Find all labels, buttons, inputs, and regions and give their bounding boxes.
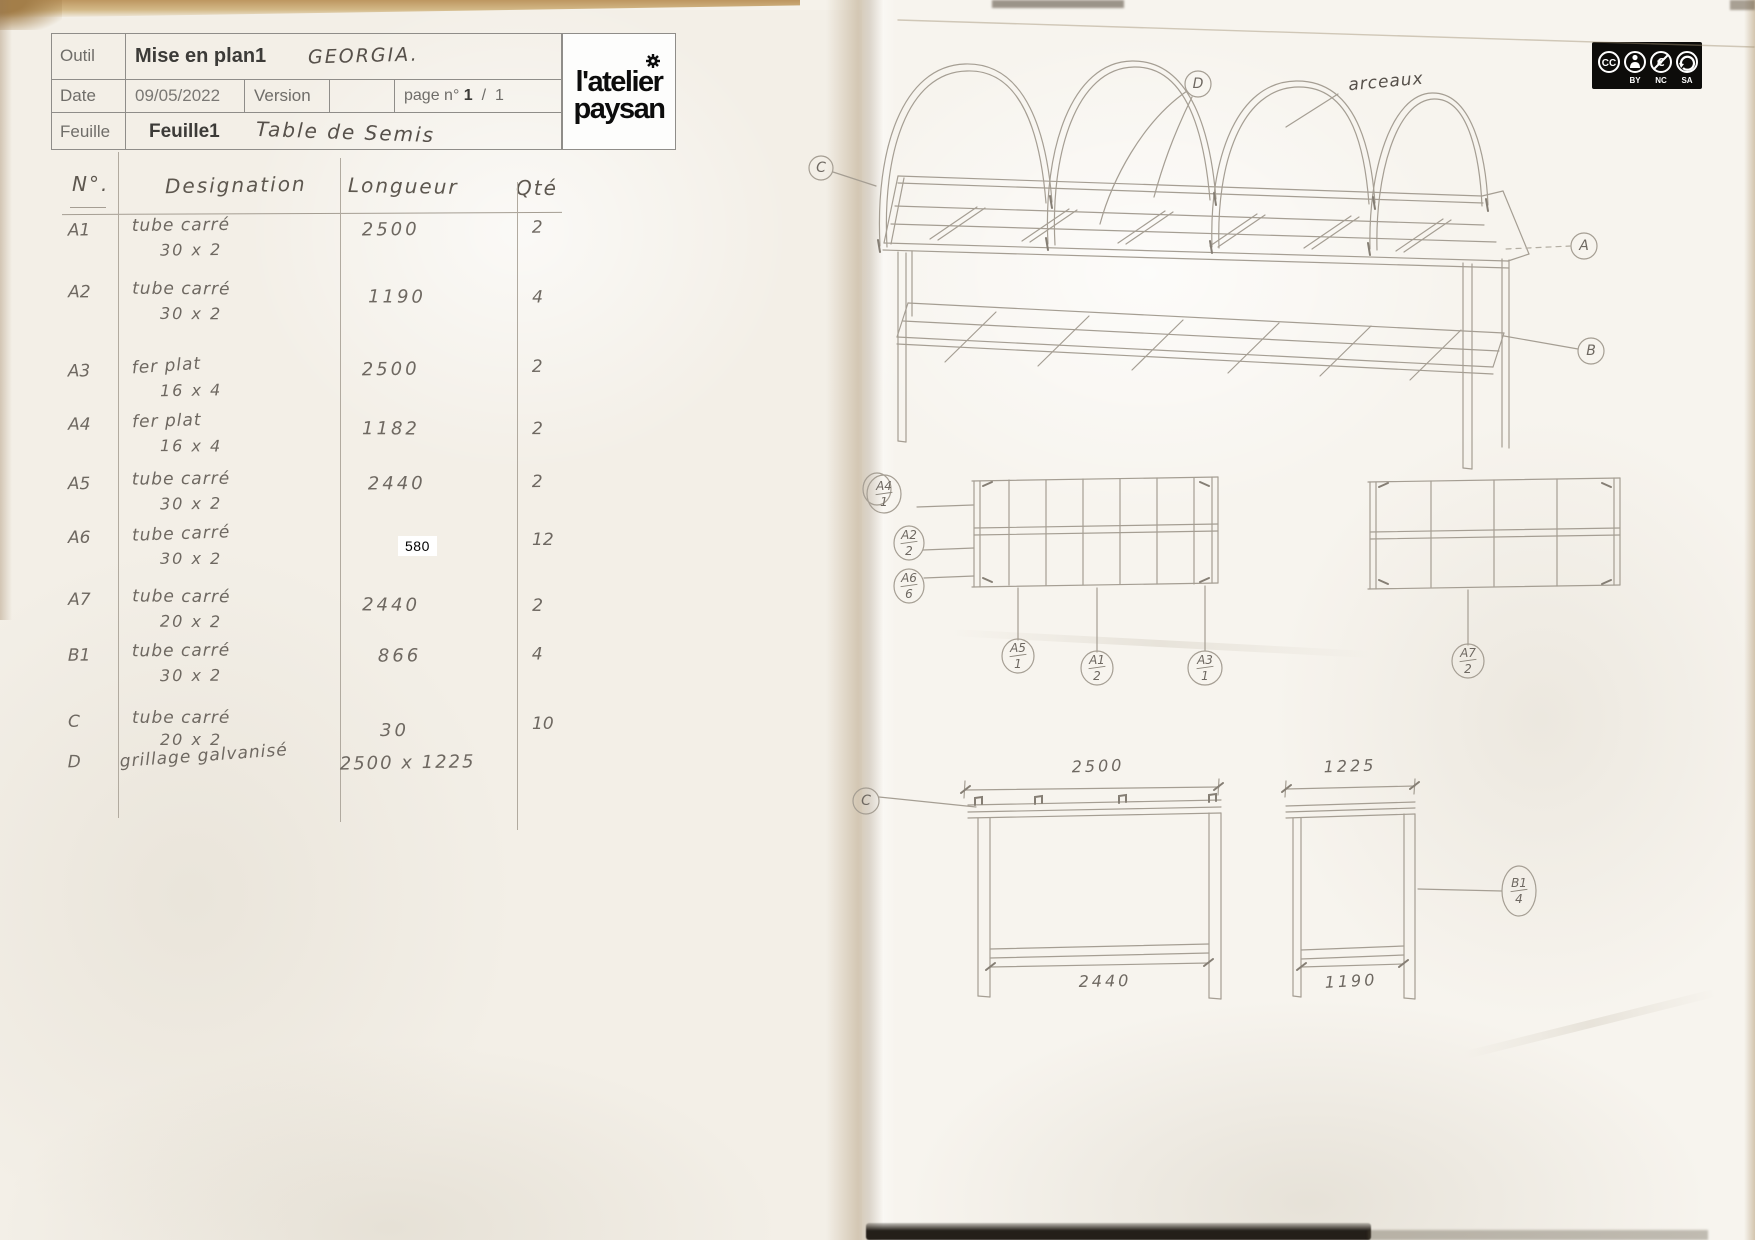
part-qty: 10 [532, 714, 554, 734]
part-count: 6 [905, 588, 913, 600]
part-num: B1 [68, 646, 91, 666]
part-size: 30 x 2 [160, 304, 222, 323]
part-longueur: 866 [378, 645, 422, 666]
balloon-a5-label: A51 [1010, 642, 1027, 670]
arceaux-leader [1286, 94, 1338, 127]
atelier-paysan-logo: l'atelier paysan [562, 33, 676, 150]
elevation-views [853, 779, 1536, 999]
scanner-band-bottom [866, 1223, 1371, 1240]
part-longueur: 2500 [362, 219, 420, 241]
part-num: A7 [68, 590, 91, 610]
part-num: A5 [68, 474, 91, 494]
header-designation: Designation [165, 172, 307, 198]
frame-panel-views [863, 473, 1620, 685]
part-ref: A5 [1010, 642, 1026, 654]
outil-value: Mise en plan1 [135, 45, 266, 68]
table-row: A3 fer plat 16 x 4 2500 2 [62, 354, 573, 417]
header-qte: Qté [516, 176, 558, 200]
part-ref: A1 [1089, 654, 1105, 666]
part-designation: tube carré [132, 641, 230, 662]
part-count: 2 [1464, 663, 1472, 675]
part-longueur: 2500 x 1225 [340, 751, 476, 774]
version-label: Version [254, 86, 311, 106]
page-separator: / [482, 87, 486, 105]
balloon-a6-label: A66 [901, 572, 918, 600]
part-count: 4 [1515, 893, 1523, 905]
balloon-c-bottom-label: C [861, 793, 871, 809]
table-row: A5 tube carré 30 x 2 2440 2 [62, 470, 572, 530]
part-longueur: 1190 [368, 286, 426, 307]
part-count: 2 [905, 545, 913, 557]
header-longueur: Longueur [348, 173, 459, 199]
header-num: N°. [72, 172, 109, 196]
title-cell-outil-label: Outil [51, 33, 126, 80]
outil-label: Outil [60, 46, 95, 66]
part-count: 1 [1201, 670, 1209, 682]
part-longueur-typed: 580 [398, 536, 437, 556]
balloon-a7-label: A72 [1460, 647, 1477, 675]
dim-side-depth-top: 1225 [1323, 756, 1376, 777]
part-qty: 4 [532, 644, 543, 664]
part-num: A6 [68, 528, 90, 548]
balloon-c-iso-label: C [816, 160, 826, 176]
part-num: A3 [68, 361, 91, 381]
balloon-a-iso-label: A [1579, 238, 1589, 254]
part-qty: 2 [532, 419, 543, 439]
balloon-b1-label: B14 [1511, 877, 1528, 905]
part-count: 2 [1093, 670, 1101, 682]
part-longueur: 2500 [362, 359, 420, 381]
part-longueur: 2440 [362, 594, 420, 616]
table-row: B1 tube carré 30 x 2 866 4 [62, 642, 572, 702]
logo-line-2: paysan [574, 96, 665, 123]
feuille-value: Feuille1 [149, 121, 220, 143]
header-num-underline [70, 207, 106, 208]
part-ref: A6 [901, 572, 917, 584]
scanner-edge-left [0, 0, 12, 620]
dim-front-width-top: 2500 [1071, 756, 1124, 777]
date-label: Date [60, 86, 96, 106]
part-size: 30 x 2 [160, 666, 222, 685]
sheet-title-handwritten: Table de Semis [255, 116, 435, 146]
balloon-a1-label: A12 [1089, 654, 1106, 682]
part-num: D [68, 752, 81, 772]
part-designation: tube carré [132, 708, 230, 728]
part-designation: tube carré [132, 469, 230, 490]
part-qty: 2 [532, 357, 543, 377]
part-count: 1 [880, 496, 888, 508]
part-ref: A7 [1460, 647, 1476, 659]
part-designation: tube carré [132, 279, 230, 300]
part-size: 16 x 4 [160, 380, 222, 400]
scanned-plan-sheet: Outil Mise en plan1 GEORGIA. Date 09/05/… [0, 0, 1755, 1240]
page-label: page n° [404, 87, 459, 105]
part-size: 30 x 2 [160, 549, 222, 568]
part-qty: 12 [532, 530, 554, 550]
part-size: 30 x 2 [160, 494, 222, 514]
part-count: 1 [1014, 658, 1022, 670]
part-num: A2 [68, 282, 91, 302]
title-cell-feuille-label: Feuille [51, 113, 126, 150]
title-cell-version-label: Version [245, 80, 330, 113]
part-num: A4 [68, 415, 91, 435]
technical-sketch [780, 0, 1755, 1100]
part-designation: fer plat [131, 354, 202, 379]
iso-view-table [809, 61, 1604, 469]
balloon-b-iso-label: B [1586, 343, 1596, 359]
part-num: A1 [68, 220, 91, 240]
feuille-label: Feuille [60, 122, 110, 142]
part-designation: tube carré [132, 215, 231, 236]
table-row: A1 tube carré 30 x 2 2500 2 [62, 215, 573, 276]
date-value: 09/05/2022 [135, 86, 220, 106]
part-designation: fer plat [132, 410, 202, 432]
balloon-a4-label: A41 [876, 480, 893, 508]
title-cell-date-value: 09/05/2022 [126, 80, 245, 113]
page-total: 1 [495, 87, 504, 105]
part-qty: 2 [532, 596, 543, 616]
part-longueur: 1182 [362, 418, 420, 439]
balloon-a3-label: A31 [1197, 654, 1214, 682]
part-ref: B1 [1511, 877, 1527, 889]
part-num: C [68, 712, 80, 732]
table-row: D grillage galvanisé 2500 x 1225 [62, 744, 573, 809]
part-size: 20 x 2 [160, 612, 222, 632]
title-cell-outil-value: Mise en plan1 GEORGIA. [126, 33, 562, 80]
title-cell-version-value [330, 80, 395, 113]
title-cell-page: page n° 1 / 1 [395, 80, 562, 113]
tool-name-handwritten: GEORGIA. [308, 44, 419, 69]
table-row: A4 fer plat 16 x 4 1182 2 [62, 415, 572, 474]
table-row: A2 tube carré 30 x 2 1190 4 [62, 282, 572, 342]
part-size: 16 x 4 [160, 436, 222, 455]
table-row: A6 tube carré 30 x 2 580 12 [62, 528, 572, 584]
balloon-a2-label: A22 [901, 529, 918, 557]
part-longueur: 2440 [368, 473, 426, 495]
part-ref: A3 [1197, 654, 1213, 666]
page-number: 1 [464, 87, 473, 105]
logo-line-1: l'atelier [576, 69, 663, 96]
part-designation: tube carré [132, 522, 231, 545]
part-ref: A2 [901, 529, 917, 541]
part-qty: 2 [532, 472, 543, 492]
part-size: 30 x 2 [160, 240, 222, 260]
part-longueur: 30 [380, 720, 409, 741]
title-cell-feuille-value: Feuille1 Table de Semis [126, 113, 562, 150]
balloon-d-iso-label: D [1193, 76, 1204, 92]
scanner-band-bottom-right [1368, 1230, 1708, 1240]
part-qty: 4 [532, 288, 543, 308]
part-qty: 2 [532, 218, 543, 238]
dim-front-width-bottom: 2440 [1078, 971, 1131, 991]
dim-side-depth-bottom: 1190 [1324, 970, 1378, 992]
part-ref: A4 [876, 480, 892, 492]
part-designation: tube carré [132, 586, 230, 607]
title-cell-date-label: Date [51, 80, 126, 113]
